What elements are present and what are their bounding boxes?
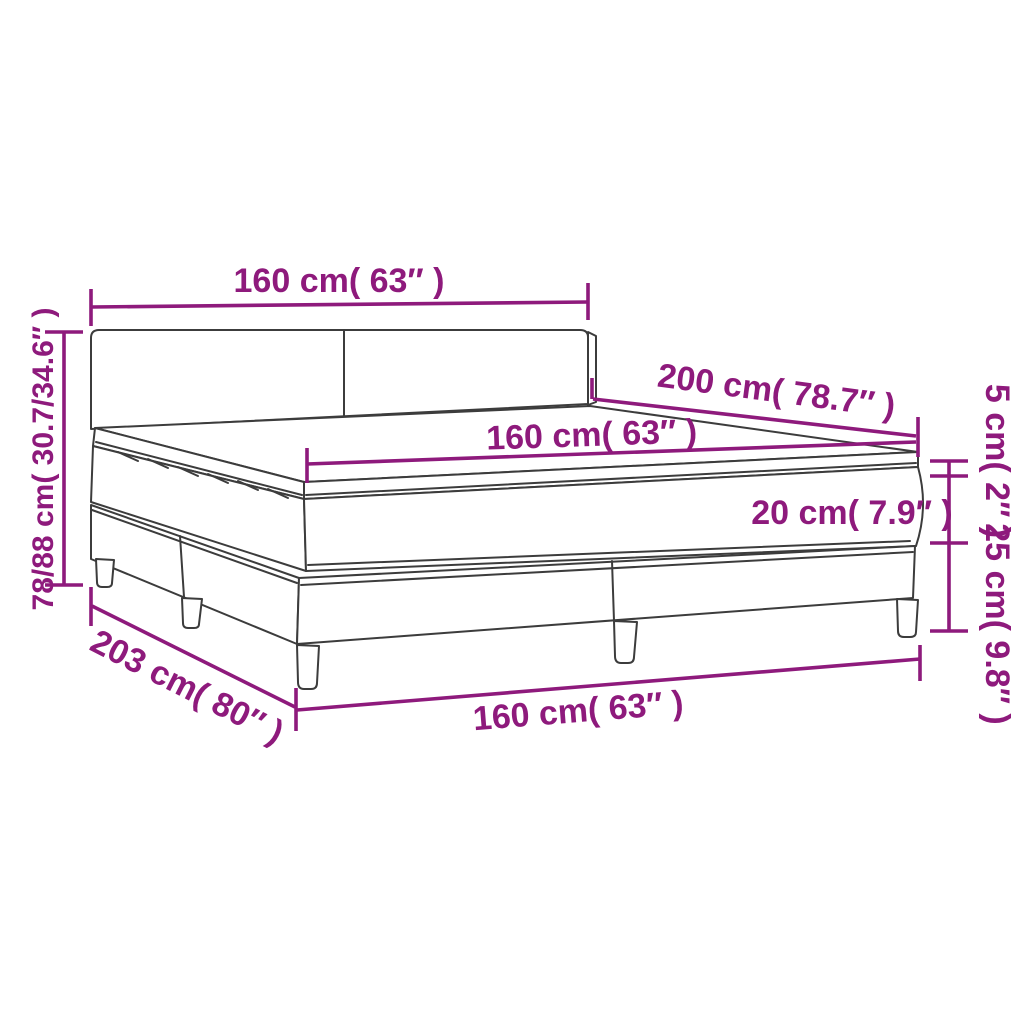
label-base-height: 25 cm( 9.8″ ) — [978, 523, 1016, 725]
label-topper-height: 5 cm( 2″ ) — [978, 384, 1016, 538]
label-headboard-width: 160 cm( 63″ ) — [234, 262, 445, 300]
dimension-diagram: 160 cm( 63″ ) 78/88 cm( 30.7/34.6″ ) 200… — [0, 0, 1024, 1024]
bed-leg-foot-left — [297, 645, 319, 689]
bed-leg-side-middle — [182, 598, 202, 628]
label-headboard-height: 78/88 cm( 30.7/34.6″ ) — [27, 308, 60, 611]
bed-leg-foot-right — [897, 599, 918, 637]
dim-right-height-stack — [930, 461, 968, 631]
bed-leg-foot-middle — [614, 621, 637, 663]
label-mattress-height: 20 cm( 7.9″ ) — [751, 494, 953, 532]
bed-dimension-drawing: 160 cm( 63″ ) 78/88 cm( 30.7/34.6″ ) 200… — [0, 0, 1024, 1024]
label-mattress-width: 160 cm( 63″ ) — [486, 412, 698, 457]
bed-leg-head-left — [96, 559, 114, 587]
